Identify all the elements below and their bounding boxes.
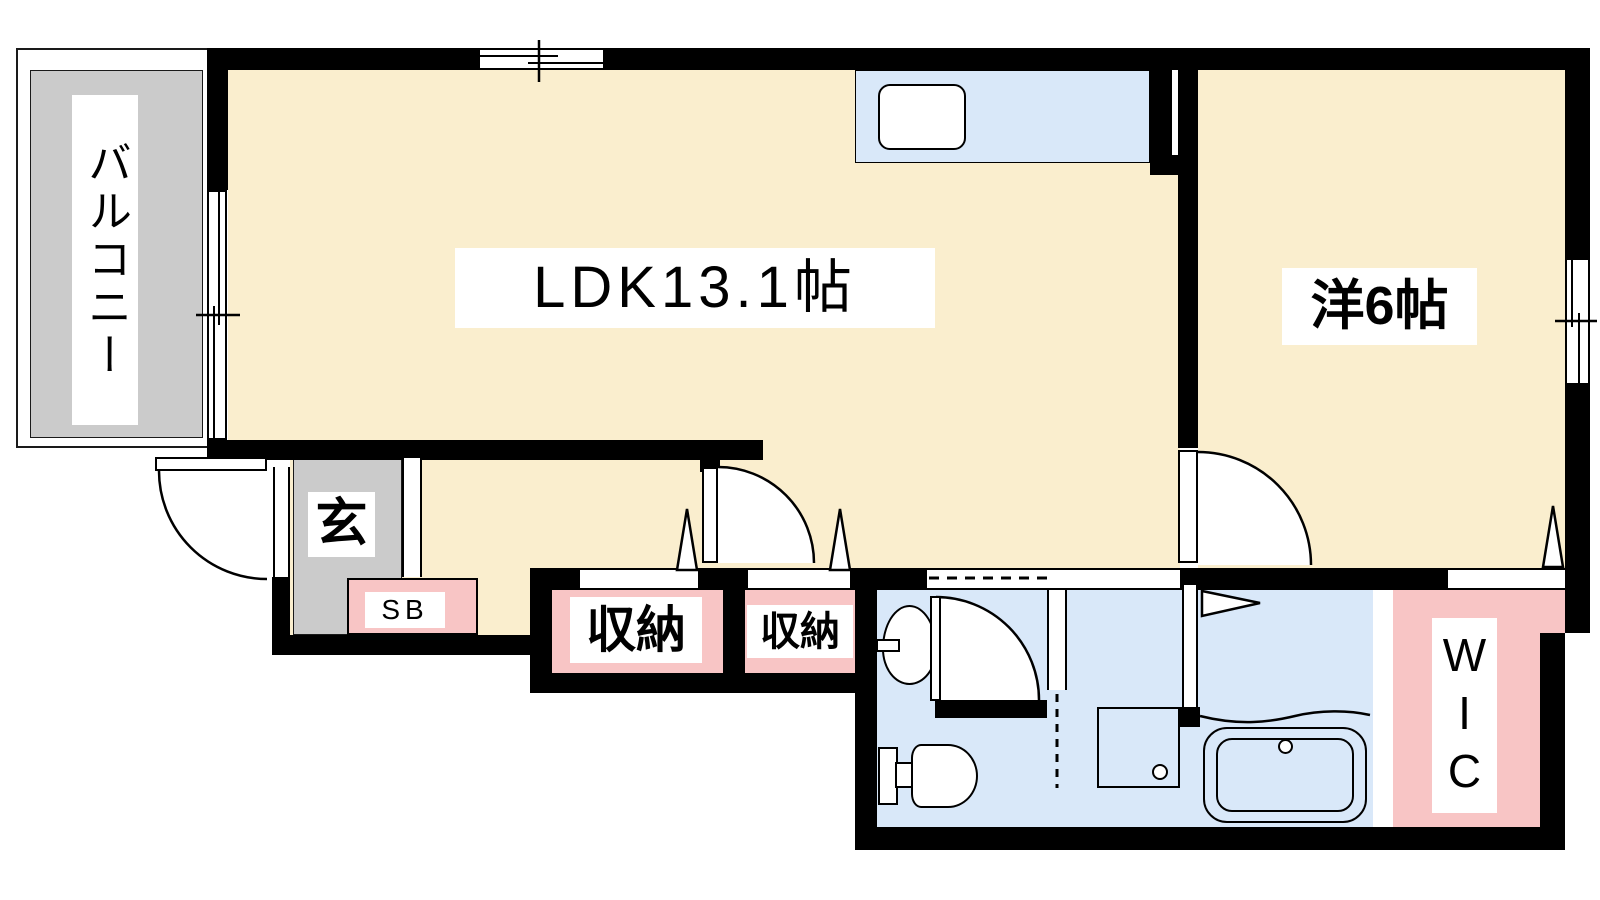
hall-door-wedge (718, 467, 814, 563)
entrance-door-wedge (159, 471, 267, 579)
floorplan-canvas: バルコニー LDK13.1帖 洋6帖 玄 SB 収納 収納 WIC (0, 0, 1600, 900)
wic-label: WIC (1432, 618, 1497, 813)
triangle-marker-1 (677, 509, 697, 570)
western-room-label: 洋6帖 (1282, 268, 1477, 345)
bath-wave-line (1200, 711, 1370, 722)
shoebox-label: SB (365, 592, 445, 628)
ldk-label: LDK13.1帖 (455, 248, 935, 328)
triangle-marker-3 (1543, 506, 1563, 567)
bath-pennant-marker (1202, 591, 1260, 616)
washroom-door-leaf (931, 597, 940, 700)
storage2-label: 収納 (747, 605, 853, 658)
triangle-marker-2 (830, 509, 850, 570)
storage1-label: 収納 (570, 597, 702, 663)
western-door-wedge (1198, 452, 1311, 565)
balcony-label: バルコニー (72, 95, 138, 425)
symbol-overlay (0, 0, 1600, 900)
washroom-door-wedge (936, 597, 1039, 700)
entrance-label: 玄 (308, 492, 375, 557)
